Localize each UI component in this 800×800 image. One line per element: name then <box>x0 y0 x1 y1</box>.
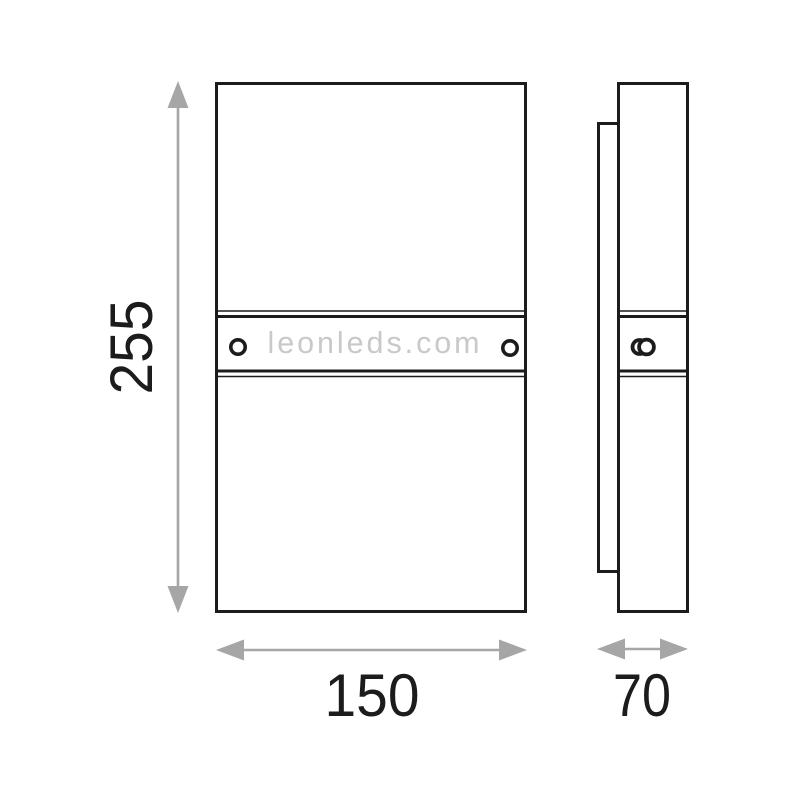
side-view-backplate-outline <box>599 124 619 572</box>
dimension-drawing-page: leonleds.com 255 <box>0 0 800 800</box>
arrow-down-icon <box>168 586 189 613</box>
height-dimension: 255 <box>98 81 189 613</box>
height-dimension-label: 255 <box>98 300 165 395</box>
arrow-left-icon <box>597 639 625 660</box>
watermark-text: leonleds.com <box>268 325 483 360</box>
width-dimension: 150 <box>216 640 527 730</box>
arrow-right-icon <box>660 639 688 660</box>
arrow-up-icon <box>168 81 189 108</box>
front-view: leonleds.com <box>217 84 526 612</box>
depth-dimension-label: 70 <box>613 662 671 729</box>
luminaire-dimension-drawing: leonleds.com 255 <box>0 0 800 800</box>
side-view <box>599 84 688 612</box>
width-dimension-label: 150 <box>325 662 420 729</box>
arrow-left-icon <box>216 640 244 661</box>
depth-dimension: 70 <box>597 639 688 730</box>
arrow-right-icon <box>499 640 527 661</box>
